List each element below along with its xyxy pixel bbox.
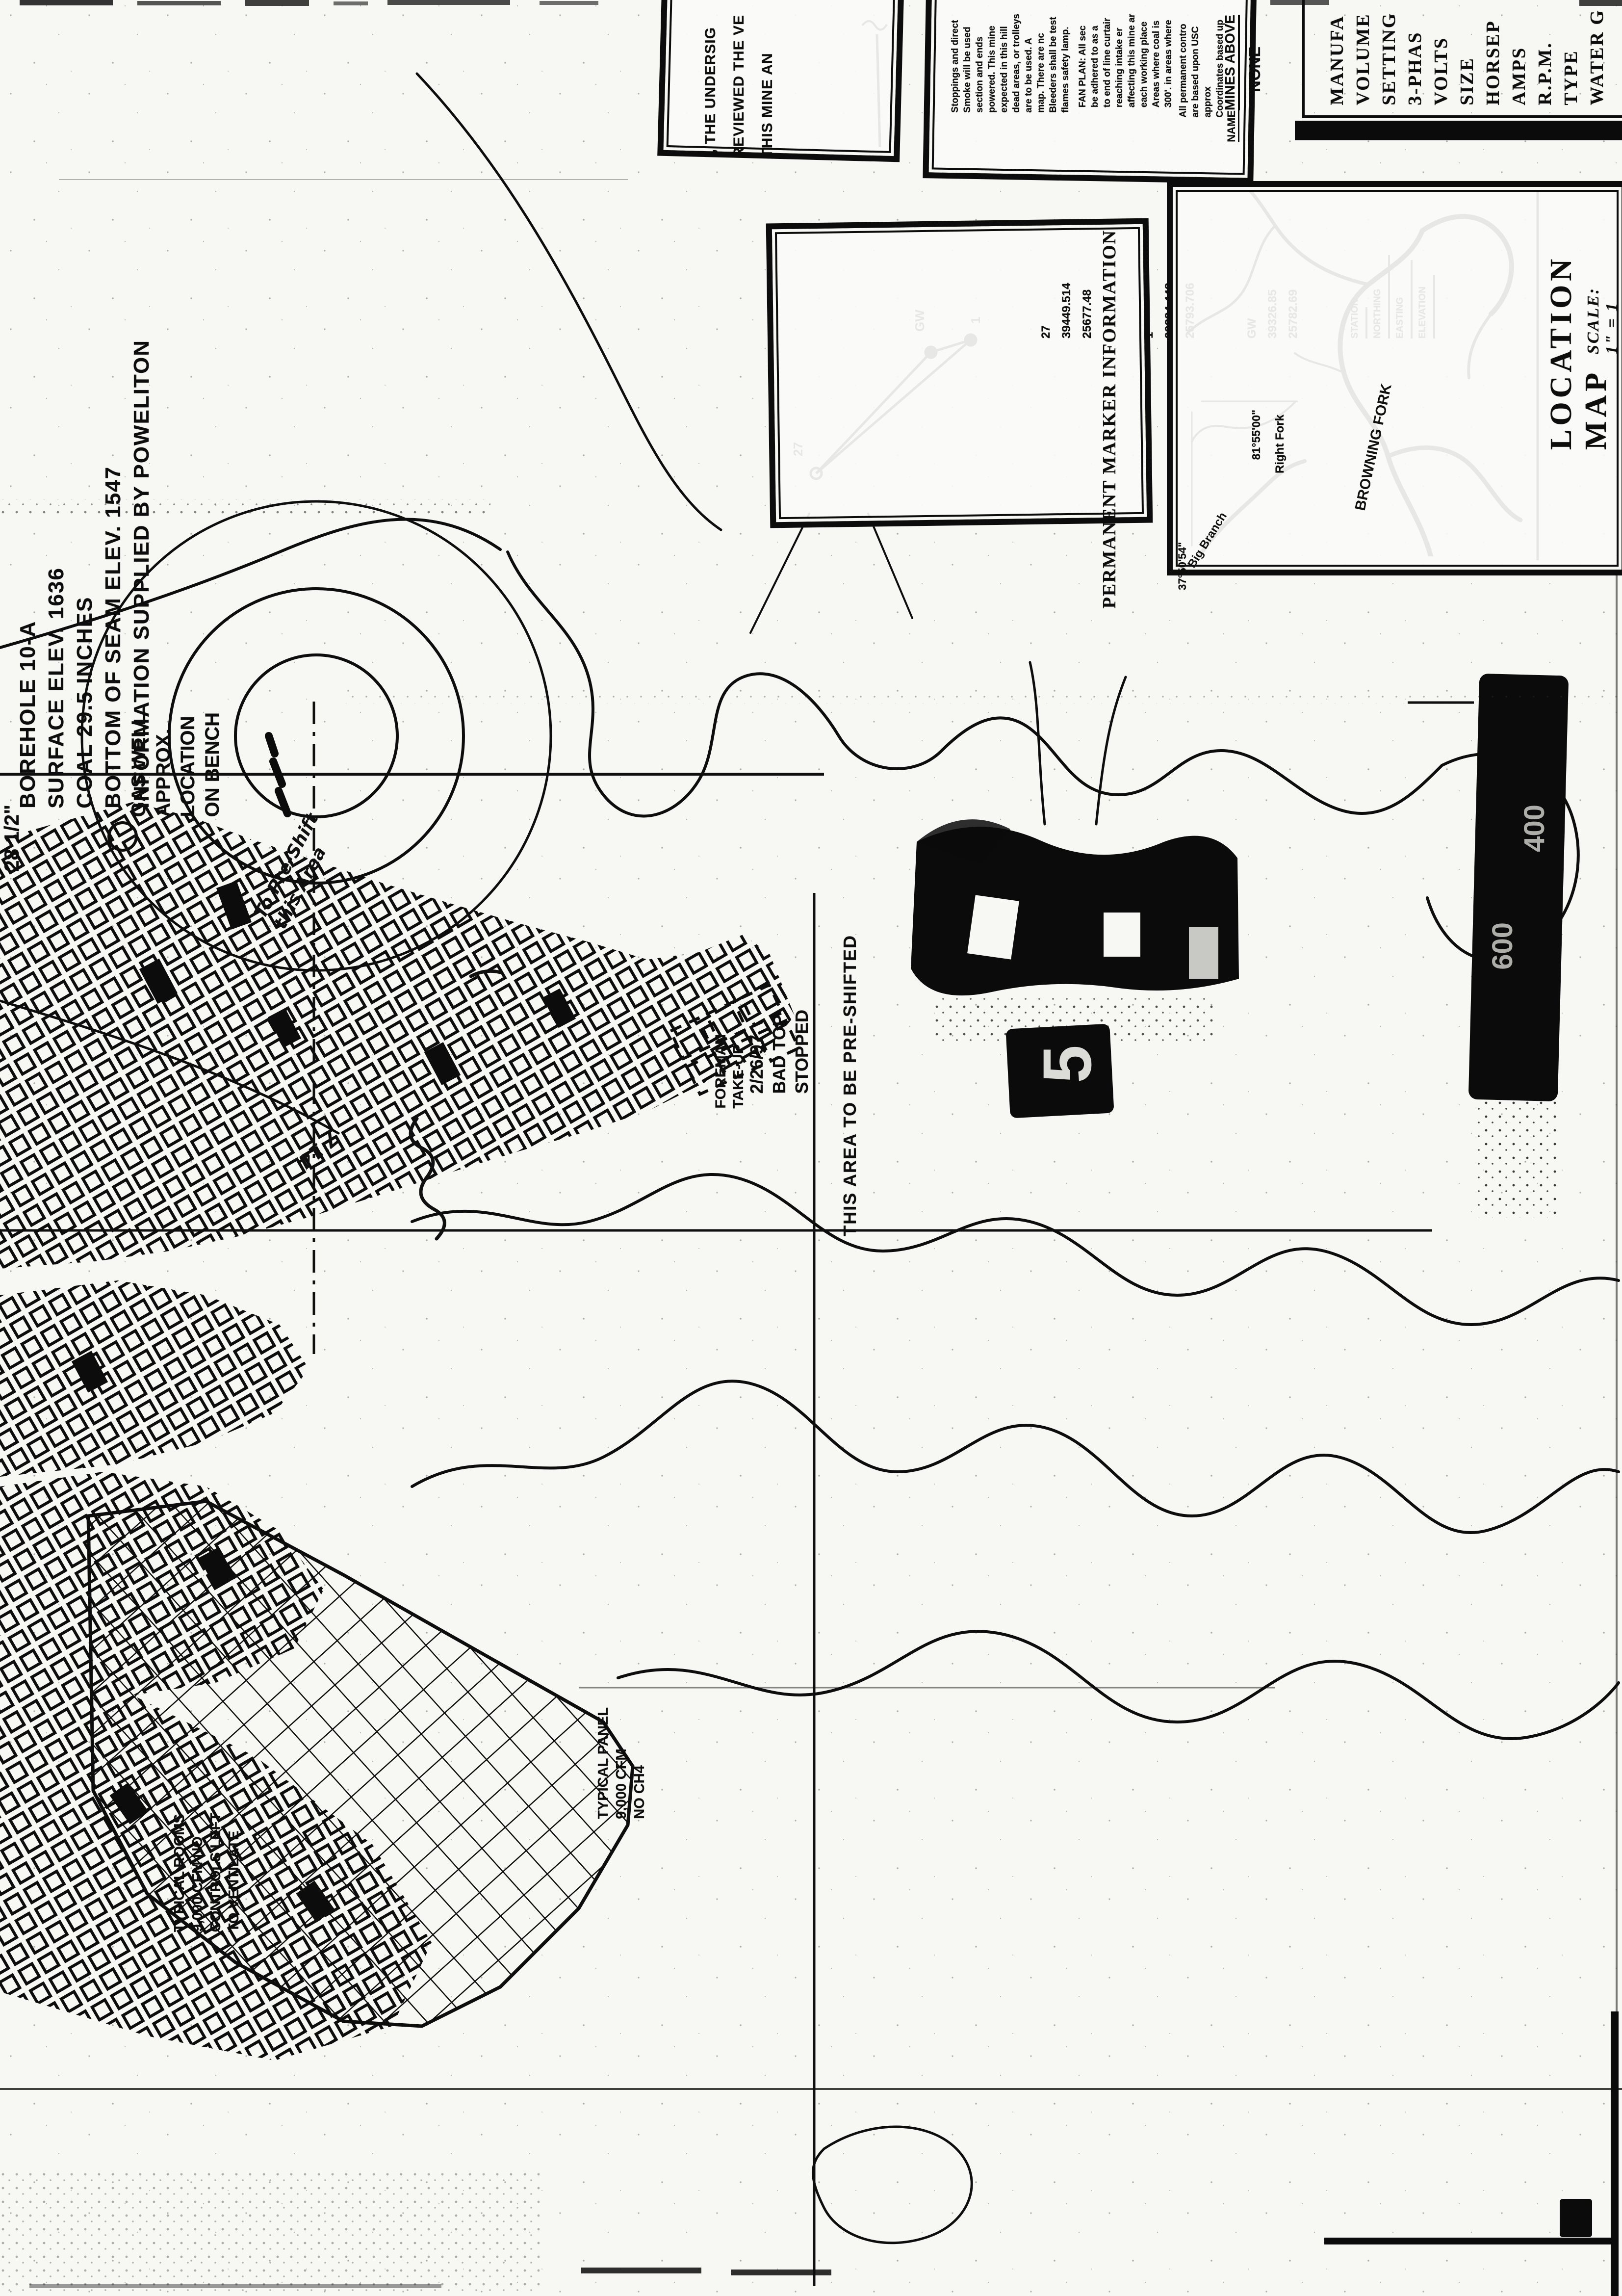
bad-top-note: 2/26/97 BAD TOP STOPPED [746,1010,813,1094]
station-cell: 1 [1139,307,1159,339]
coal-thickness-label: 28 1/2" [0,805,24,872]
label-right-fork: Right Fork [1273,415,1287,473]
smudge-blob [911,819,1239,1044]
fan-panel-band [1295,121,1622,140]
northing-cell: 39449.514 [1056,255,1077,339]
scanned-mine-map: 27 GW 1 BOREHOLE 10-A SURFACE ELEV. 1636 [0,0,1622,2296]
ventilation-para3: All permanent contro are based upon USC … [1177,20,1226,118]
shaft-label-600: 600 [1486,922,1519,970]
photocopy-streak-2 [343,693,1619,704]
name-label: NAME [1225,110,1239,142]
ventilation-para1: Stoppings and direct Smoke will be used … [949,14,1072,113]
typical-panel-note: TYPICAL PANEL 9,000 CFM NO CH4 [594,1707,649,1819]
easting-cell: 25677.48 [1077,260,1098,339]
certification-text: I, THE UNDERSIG REVIEWED THE VE THIS MIN… [696,15,782,158]
fan-panel-lines: MANUFA VOLUME SETTING 3-PHAS VOLTS SIZE … [1324,9,1610,105]
shaft-label-400: 400 [1518,805,1551,852]
label-longitude: 81°55'00" [1250,410,1263,460]
mines-above-value: NONE [1246,47,1264,92]
marker-row-27: 27 39449.514 25677.48 [1015,255,1098,339]
sheet-number: 5 [1028,1045,1107,1083]
typical-rooms-note: TYPICAL ROOMS 9,000 CFM NO CONTROLS LEFT… [171,1813,243,1932]
label-latitude: 37°50'54" [1176,542,1189,590]
station-cell: 27 [1036,307,1056,339]
mines-above-label: MINES ABOVE [1222,15,1240,110]
gas-well-note: GAS WELL APPROX. LOCATION ON BENCH [127,712,225,817]
ventilation-para2: FAN PLAN: All sec be adhered to as a to … [1077,14,1175,107]
preshift-area-note: THIS AREA TO BE PRE-SHIFTED [840,935,860,1236]
foreman-note: FOREMAN TAKE-UP [712,1034,747,1109]
location-map-scale: SCALE: 1" = 1 MILE [1584,287,1622,354]
bottom-speckle [0,2173,540,2296]
